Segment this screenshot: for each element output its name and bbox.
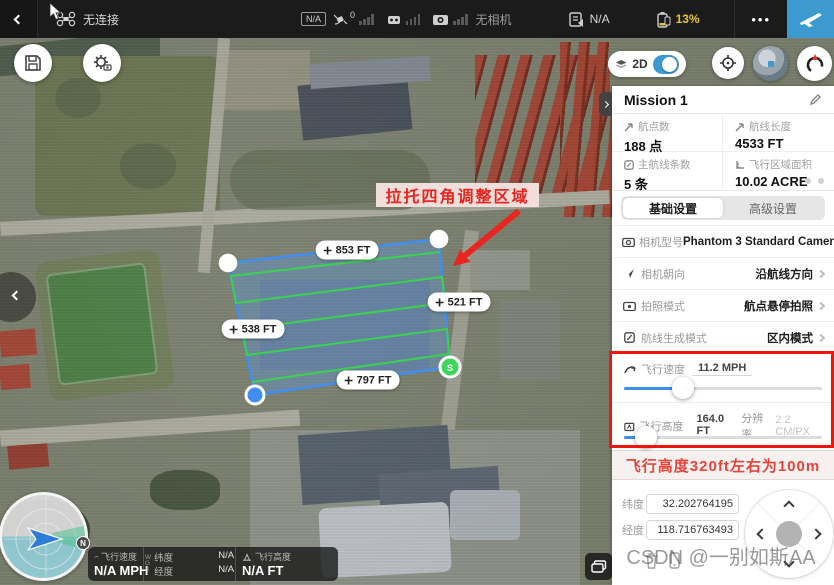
move-cross-icon [345,376,353,384]
edge-length-bottom[interactable]: 797 FT [337,371,400,390]
airplane-icon [799,10,823,28]
telemetry-wgs: W G S 纬度N/A 经度N/A [143,547,235,581]
latitude-field[interactable]: 32.202764195 [646,494,739,514]
map-mode-pill: 2D [608,51,686,77]
stats-page-dots[interactable] [805,178,824,184]
move-cross-icon [230,325,238,333]
flight-sliders: 飞行速度 11.2 MPH 飞行高度 164.0 FT 分辨率 2.2 CM/P… [612,353,834,450]
speed-icon [94,553,98,561]
move-cross-icon [436,298,444,306]
edge-length-top-label: 853 FT [336,244,371,256]
map-soccer-field [46,262,159,385]
map-mode-label: 2D [632,57,647,71]
map-building [260,280,430,370]
stat-route-length: 航线长度 4533 FT [723,114,834,152]
edge-length-right-label: 521 FT [448,296,483,308]
stat-area: 飞行区域面积 10.02 ACRE [723,152,834,190]
map-building [309,56,430,89]
resolution-value: 2.2 CM/PX [775,414,822,438]
collapse-left-chevron-icon [12,291,22,301]
route-length-icon [735,122,745,132]
map-2d-toggle[interactable] [653,55,679,74]
battery-icon [656,11,671,28]
map-park [35,56,220,216]
camera-heading-icon [624,268,635,279]
edge-length-right[interactable]: 521 FT [428,293,491,312]
mission-stats: 航点数 188 点 航线长度 4533 FT 主航线条数 5 条 飞行区域面积 … [612,114,834,191]
camera-settings-button[interactable] [83,44,121,82]
toggle-knob [662,57,677,72]
mission-title: Mission 1 [624,92,688,108]
gallery-icon [591,560,607,573]
gps-status-badge: N/A [301,12,326,26]
altitude-slider-row: 飞行高度 164.0 FT 分辨率 2.2 CM/PX [612,402,834,450]
edge-length-left[interactable]: 538 FT [222,320,285,339]
flight-mode-value: N/A [590,12,610,26]
nudge-up-icon[interactable] [783,500,794,511]
altitude-tip-note: 飞行高度320ft左右为100m [612,450,834,480]
row-chevron-icon [817,269,825,277]
settings-tabs: 基础设置 高级设置 [621,196,825,220]
top-status-bar: 无连接 N/A 0 无相机 N/A 13% ••• [0,0,834,38]
shoot-mode-icon [623,301,636,311]
mission-panel-collapse-button[interactable] [599,92,612,116]
tab-basic-settings[interactable]: 基础设置 [623,198,723,218]
map-redroof [0,364,31,391]
mouse-cursor [49,2,62,21]
map-redroof [0,328,37,357]
edge-length-top[interactable]: 853 FT [316,241,379,260]
route-mode-icon [624,332,635,343]
save-icon [24,54,42,72]
telemetry-altitude: 飞行高度 N/A FT [235,547,338,581]
annotation-label: 拉托四角调整区域 [376,183,539,207]
speed-label: 飞行速度 [641,361,685,377]
minimap-position-dot [768,61,774,67]
row-chevron-icon [817,333,825,341]
row-chevron-icon [817,301,825,309]
map-trees [55,78,101,118]
hd-signal-bars-icon [453,14,468,25]
longitude-row: 经度 118.716763493 [612,520,739,540]
longitude-label: 经度 [622,522,646,538]
more-menu-button[interactable]: ••• [734,0,787,38]
north-badge: N [76,536,90,550]
crosshair-icon [719,54,737,72]
back-button[interactable] [0,0,38,38]
camera-signal-icon [432,13,449,26]
speed-slider-row: 飞行速度 11.2 MPH [612,354,834,402]
locate-button[interactable] [712,47,744,79]
area-icon [735,160,745,170]
takeoff-button[interactable] [787,0,834,38]
setting-row-camera-model[interactable]: 相机型号 Phantom 3 Standard Camera [612,225,834,257]
minimap-button[interactable] [753,46,788,81]
edge-length-left-label: 538 FT [242,323,277,335]
remote-controller-icon [386,12,402,26]
map-building-white [450,490,520,540]
longitude-field[interactable]: 118.716763493 [646,520,739,540]
setting-row-camera-heading[interactable]: 相机朝向 沿航线方向 [612,257,834,289]
speed-icon [624,364,636,375]
telemetry-bar: 飞行速度 N/A MPH W G S 纬度N/A 经度N/A 飞行高度 N/A … [88,547,338,581]
panel-collapse-chevron-icon [602,100,609,107]
setting-row-shoot-mode[interactable]: 拍照模式 航点悬停拍照 [612,289,834,321]
latitude-row: 纬度 32.202764195 [612,494,739,514]
stat-main-lines: 主航线条数 5 条 [612,152,723,190]
watermark: CSDN @一别如斯AA [608,541,834,570]
setting-row-route-mode[interactable]: 航线生成模式 区内模式 [612,321,834,353]
speed-slider-thumb[interactable] [672,377,694,399]
edge-length-bottom-label: 797 FT [357,374,392,386]
connection-status: 无连接 [83,11,119,28]
waypoint-icon [624,122,634,132]
flight-mode-icon [568,11,585,27]
map-block [470,250,530,290]
altitude-slider-track[interactable] [624,436,822,439]
save-mission-button[interactable] [14,44,52,82]
map-trees [120,143,176,189]
latitude-label: 纬度 [622,496,646,512]
nudge-right-icon[interactable] [810,528,821,539]
battery-percent: 13% [676,12,700,26]
back-chevron-icon [14,14,24,24]
altitude-slider-thumb[interactable] [635,426,657,448]
rc-signal-bars-icon [406,14,421,25]
map-block [220,50,310,110]
speed-slider-track[interactable] [624,387,822,390]
speed-value-field[interactable]: 11.2 MPH [692,362,752,376]
compass-reset-button[interactable] [797,46,832,81]
nudge-left-icon[interactable] [756,528,767,539]
stat-waypoints: 航点数 188 点 [612,114,723,152]
altitude-icon [624,421,635,432]
map-block [500,300,560,380]
telemetry-speed: 飞行速度 N/A MPH [88,547,143,581]
camera-status: 无相机 [476,11,512,28]
camera-model-icon [622,237,635,247]
gps-signal-bars-icon [359,14,374,25]
move-cross-icon [324,246,332,254]
mission-panel: Mission 1 航点数 188 点 航线长度 4533 FT 主航线条数 5 [612,86,834,585]
tab-advanced-settings[interactable]: 高级设置 [723,198,823,218]
mission-header: Mission 1 [612,86,834,114]
map-trees [150,470,220,510]
wgs-label: W G S [145,555,151,573]
edit-pencil-icon[interactable] [809,93,822,106]
satellite-icon [332,12,349,27]
attitude-compass [0,492,88,581]
gear-icon [92,53,112,73]
map-building-white [318,502,451,579]
altitude-icon [242,553,252,561]
layers-icon [615,58,627,71]
main-lines-icon [624,160,634,170]
compass-icon [804,53,826,75]
satellite-count: 0 [350,10,355,20]
